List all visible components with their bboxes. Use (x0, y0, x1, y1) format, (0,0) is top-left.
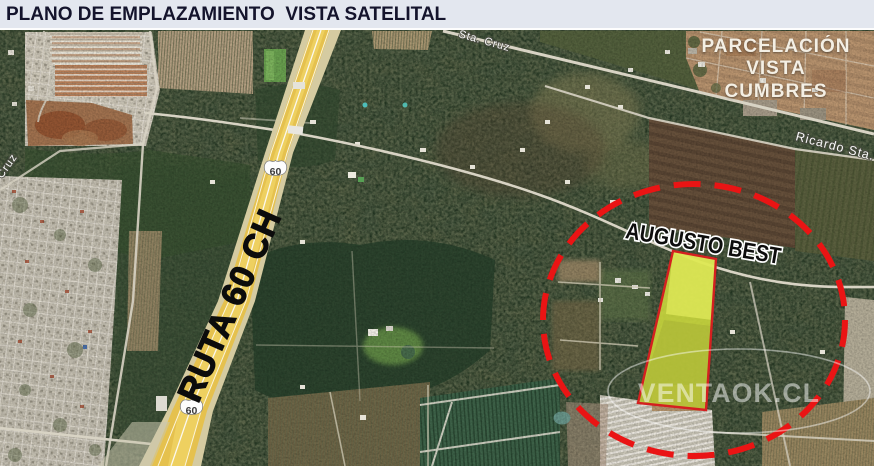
svg-text:CUMBRES: CUMBRES (724, 81, 827, 102)
svg-text:PARCELACIÓN: PARCELACIÓN (702, 35, 851, 57)
svg-text:60: 60 (270, 166, 282, 178)
svg-text:60: 60 (186, 405, 198, 417)
svg-text:VENTAOK.CL: VENTAOK.CL (638, 378, 820, 408)
svg-text:VISTA: VISTA (746, 58, 806, 79)
